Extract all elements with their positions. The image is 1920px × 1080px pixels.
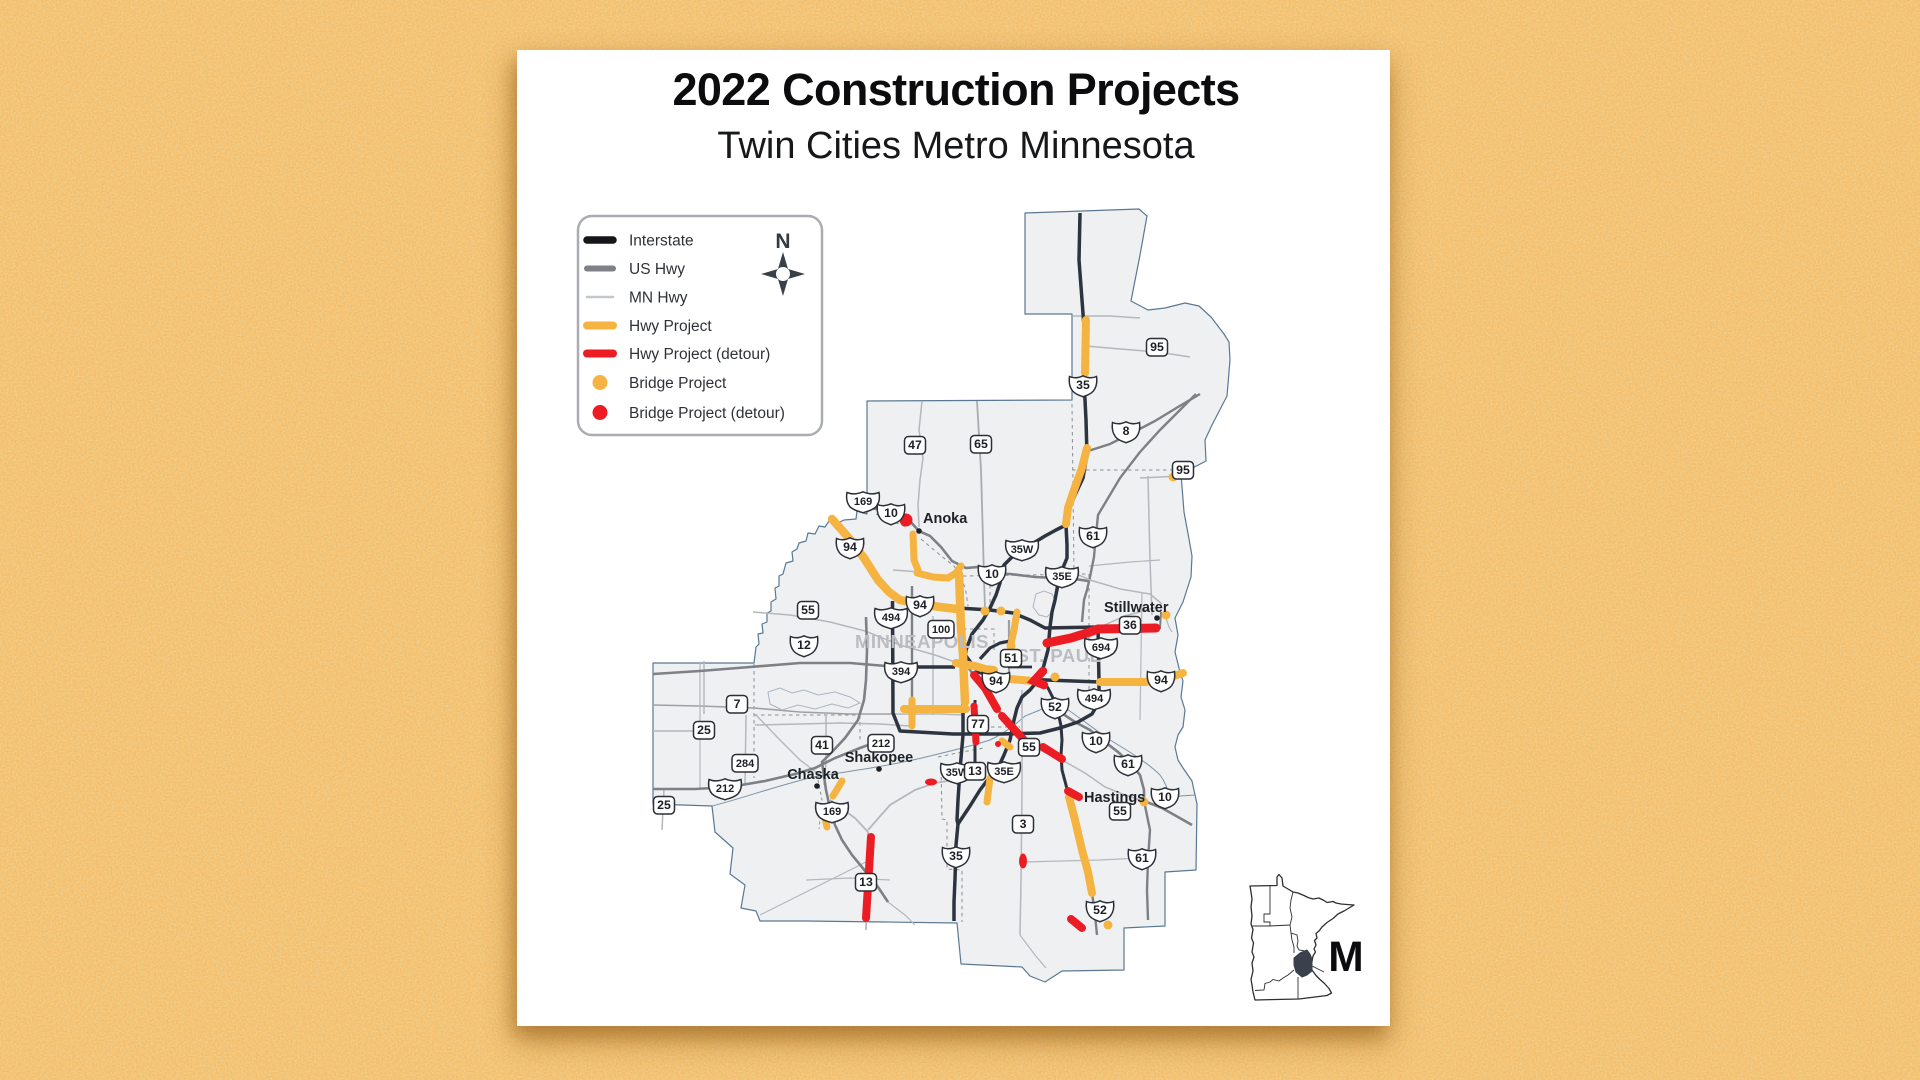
svg-text:169: 169 <box>823 806 841 818</box>
svg-text:494: 494 <box>1085 693 1104 705</box>
svg-text:35E: 35E <box>994 766 1014 778</box>
svg-text:94: 94 <box>989 674 1003 688</box>
svg-text:35W: 35W <box>1011 544 1034 556</box>
svg-text:Twin Cities Metro Minnesota: Twin Cities Metro Minnesota <box>717 125 1195 167</box>
svg-text:55: 55 <box>1022 740 1036 754</box>
svg-text:212: 212 <box>716 783 734 795</box>
svg-text:Chaska: Chaska <box>787 767 840 783</box>
svg-text:47: 47 <box>908 438 922 452</box>
svg-text:10: 10 <box>1089 734 1103 748</box>
svg-text:3: 3 <box>1020 817 1027 831</box>
svg-text:284: 284 <box>736 758 755 770</box>
svg-text:Bridge Project: Bridge Project <box>629 375 727 392</box>
svg-text:52: 52 <box>1048 700 1062 714</box>
svg-text:41: 41 <box>815 738 829 752</box>
svg-text:10: 10 <box>884 506 898 520</box>
svg-text:94: 94 <box>913 598 927 612</box>
svg-text:8: 8 <box>1123 424 1130 438</box>
svg-text:Interstate: Interstate <box>629 233 694 250</box>
svg-text:94: 94 <box>1154 673 1168 687</box>
svg-text:394: 394 <box>892 666 911 678</box>
svg-text:169: 169 <box>854 496 872 508</box>
svg-text:100: 100 <box>932 624 950 636</box>
svg-text:61: 61 <box>1121 757 1135 771</box>
svg-text:M: M <box>1328 934 1363 981</box>
svg-text:61: 61 <box>1086 529 1100 543</box>
svg-text:51: 51 <box>1004 651 1018 665</box>
svg-text:61: 61 <box>1135 851 1149 865</box>
svg-text:65: 65 <box>974 437 988 451</box>
svg-text:25: 25 <box>697 723 711 737</box>
svg-text:Anoka: Anoka <box>923 511 968 527</box>
svg-text:Hwy Project: Hwy Project <box>629 318 712 335</box>
svg-text:55: 55 <box>1113 804 1127 818</box>
svg-text:35: 35 <box>949 849 963 863</box>
svg-text:25: 25 <box>657 798 671 812</box>
svg-text:10: 10 <box>1158 790 1172 804</box>
svg-text:7: 7 <box>734 697 741 711</box>
svg-text:35: 35 <box>1076 378 1090 392</box>
svg-text:MINNEAPOLIS: MINNEAPOLIS <box>855 631 989 652</box>
svg-text:212: 212 <box>872 738 890 750</box>
svg-text:US Hwy: US Hwy <box>629 261 685 278</box>
svg-text:77: 77 <box>971 717 985 731</box>
svg-text:36: 36 <box>1123 618 1137 632</box>
svg-text:Stillwater: Stillwater <box>1104 600 1169 616</box>
svg-text:12: 12 <box>797 638 811 652</box>
svg-text:95: 95 <box>1150 340 1164 354</box>
svg-text:694: 694 <box>1092 642 1111 654</box>
svg-text:Hwy Project (detour): Hwy Project (detour) <box>629 346 770 363</box>
svg-text:52: 52 <box>1093 903 1107 917</box>
svg-text:MN Hwy: MN Hwy <box>629 290 688 307</box>
svg-text:35E: 35E <box>1052 571 1072 583</box>
svg-text:95: 95 <box>1176 463 1190 477</box>
svg-text:N: N <box>775 230 790 253</box>
svg-text:13: 13 <box>859 875 873 889</box>
svg-text:94: 94 <box>843 540 857 554</box>
svg-text:10: 10 <box>985 567 999 581</box>
svg-text:494: 494 <box>882 612 901 624</box>
svg-text:55: 55 <box>801 603 815 617</box>
svg-text:2022 Construction Projects: 2022 Construction Projects <box>672 64 1239 115</box>
svg-text:13: 13 <box>968 764 982 778</box>
svg-text:Bridge Project (detour): Bridge Project (detour) <box>629 405 785 422</box>
